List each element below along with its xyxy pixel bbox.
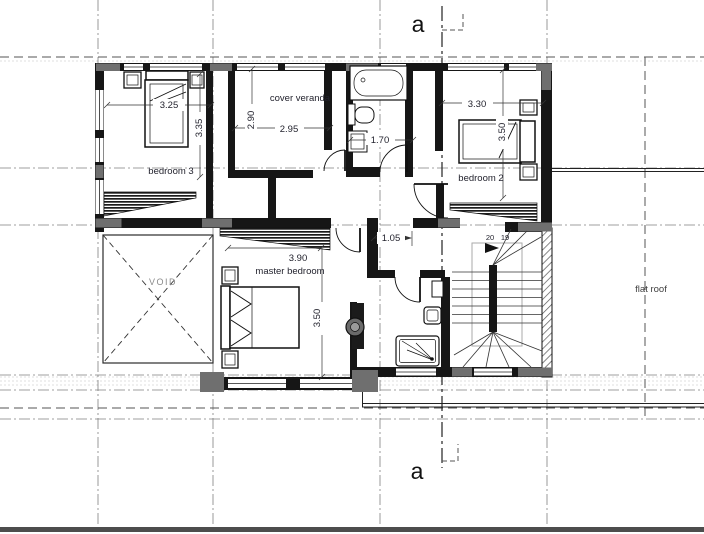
bed-double bbox=[230, 287, 299, 348]
dim-bedroom2-height: 3.50 bbox=[497, 123, 508, 142]
dim-hall-width: 1.05 bbox=[382, 233, 401, 244]
floor-plan-canvas: a a bbox=[0, 0, 704, 534]
toilet-tank bbox=[348, 104, 355, 125]
label-bedroom2: bedroom 2 bbox=[458, 173, 503, 184]
wardrobe-master bbox=[220, 228, 330, 250]
bed bbox=[145, 80, 188, 147]
toilet-bowl bbox=[355, 107, 374, 123]
stair-step-number-lower: 19 bbox=[501, 233, 509, 242]
roof-stipple-band bbox=[0, 59, 704, 63]
shower-tray bbox=[396, 336, 439, 366]
label-flat-roof: flat roof bbox=[635, 284, 667, 295]
dim-bedroom2-width: 3.30 bbox=[468, 99, 487, 110]
bed-headboard bbox=[146, 71, 188, 80]
stair-side-wall-hatched bbox=[542, 228, 552, 377]
dim-bedroom3-width: 3.25 bbox=[160, 100, 179, 111]
dim-bathroom-width: 1.70 bbox=[371, 135, 390, 146]
furniture-master-bedroom bbox=[221, 267, 299, 368]
stair-direction-arrow bbox=[485, 243, 499, 253]
fixtures-ensuite bbox=[346, 281, 443, 366]
dim-veranda-height: 2.90 bbox=[246, 111, 257, 130]
stair-step-number-upper: 20 bbox=[486, 233, 494, 242]
bed bbox=[459, 120, 521, 163]
dim-master-height: 3.50 bbox=[312, 309, 323, 328]
bathtub bbox=[350, 66, 407, 100]
floor-plan: a a bbox=[0, 0, 704, 534]
bed-headboard bbox=[221, 286, 230, 349]
section-marker-top: a bbox=[412, 11, 425, 37]
wardrobe-bedroom3 bbox=[104, 192, 196, 216]
label-cover-veranda: cover veranda bbox=[270, 93, 331, 104]
void-opening bbox=[103, 235, 213, 363]
label-master-bedroom: master bedroom bbox=[255, 266, 324, 277]
toilet bbox=[424, 307, 441, 324]
wardrobe-bedroom2 bbox=[450, 203, 537, 221]
door-master-bedroom bbox=[336, 228, 360, 252]
door-ensuite bbox=[395, 277, 420, 302]
label-bedroom3: bedroom 3 bbox=[148, 166, 193, 177]
dim-master-width: 3.90 bbox=[289, 253, 308, 264]
dim-veranda-width: 2.95 bbox=[280, 124, 299, 135]
section-marker-bottom: a bbox=[411, 458, 424, 484]
label-void: VOID bbox=[149, 277, 177, 287]
drawing-border-bottom bbox=[0, 527, 704, 532]
dim-bedroom3-height: 3.35 bbox=[194, 119, 205, 138]
cabinet bbox=[432, 281, 443, 297]
bed-headboard bbox=[520, 121, 535, 162]
